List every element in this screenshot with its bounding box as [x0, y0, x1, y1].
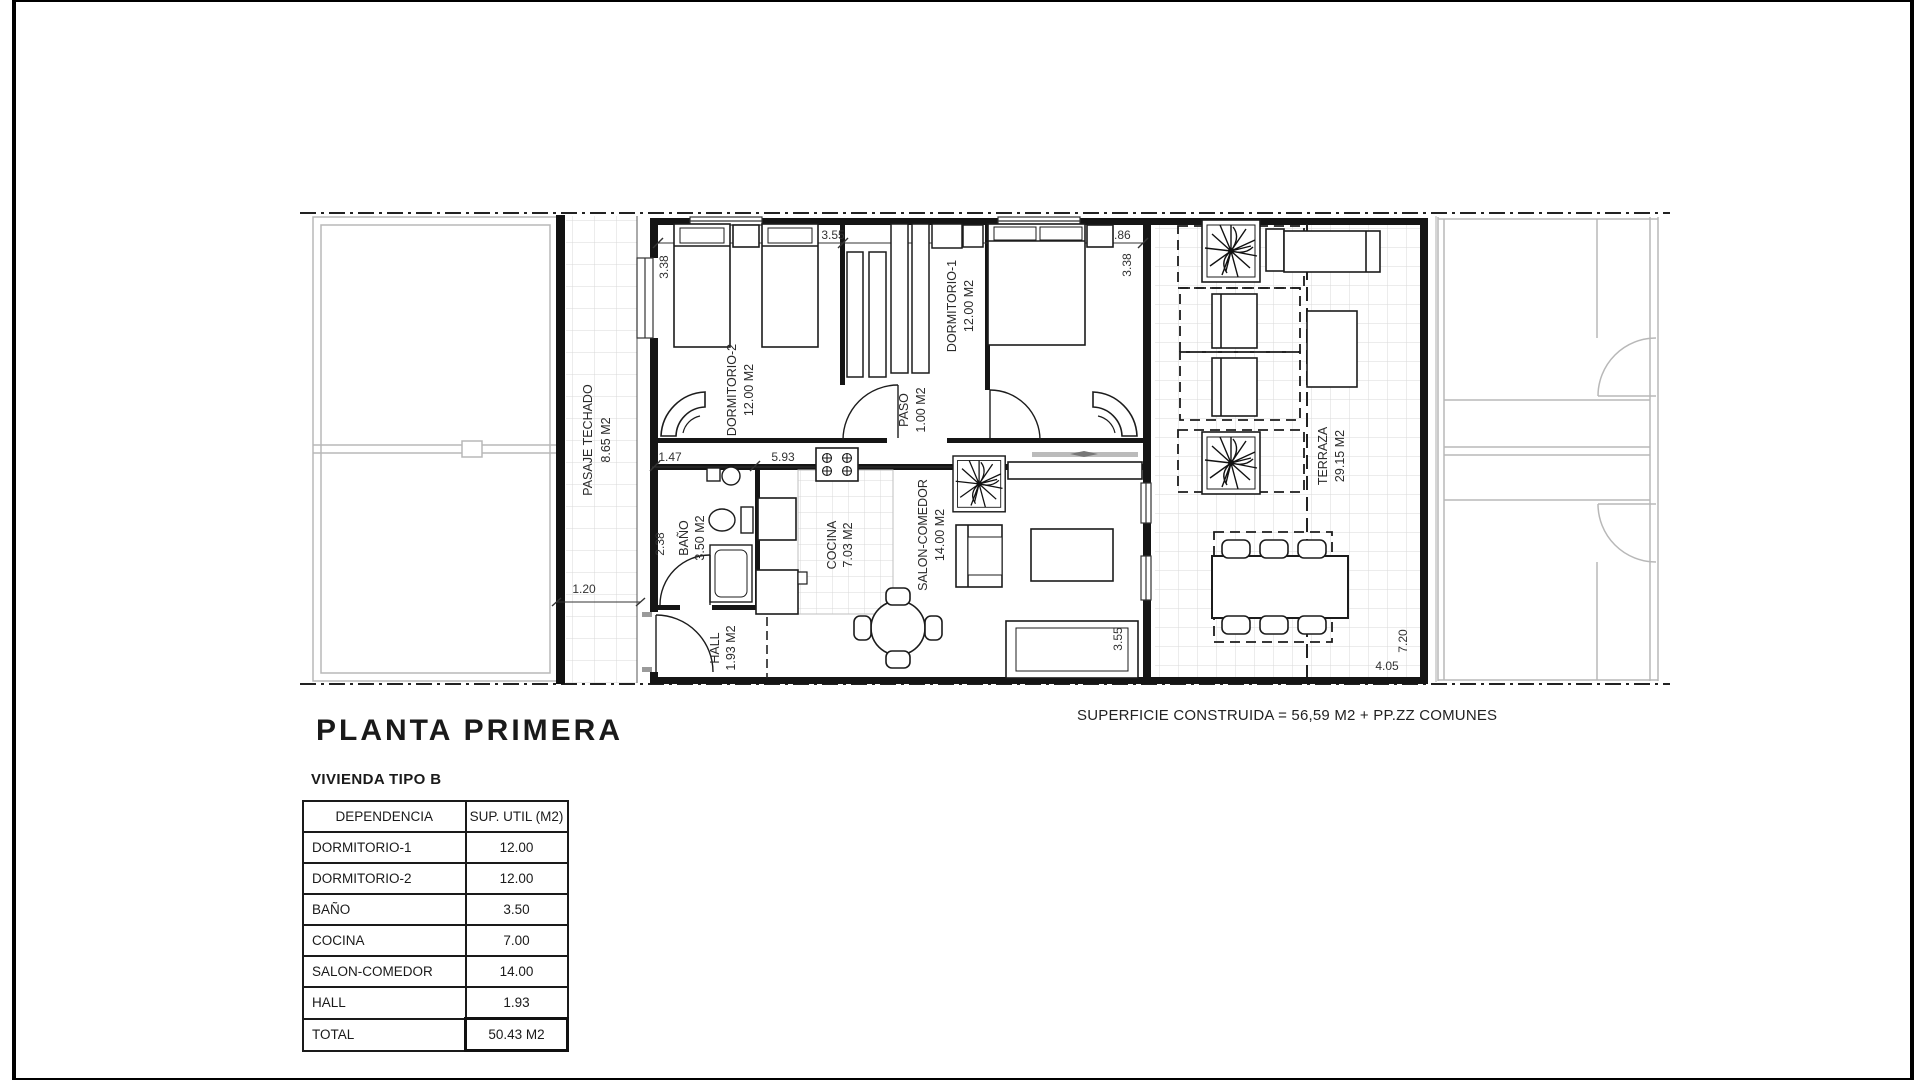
hall-door — [642, 612, 713, 672]
room-area: 1.93 M2 — [724, 625, 738, 670]
col-header-sup-util: SUP. UTIL (M2) — [466, 801, 568, 832]
drawing-sheet: PASAJE TECHADO 8.65 M2 1.20 — [0, 0, 1920, 1080]
dim-bath-height: 2.38 — [653, 532, 667, 556]
dim-dorm1-height: 3.38 — [1120, 253, 1134, 277]
table-title: VIVIENDA TIPO B — [311, 771, 441, 788]
plant-icon — [1202, 432, 1260, 494]
room-label: DORMITORIO-1 — [945, 260, 959, 352]
room-label: HALL — [708, 632, 722, 663]
dormitorio2-furniture — [661, 224, 818, 436]
room-label: PASO — [897, 393, 911, 427]
plant-icon — [1202, 220, 1260, 282]
room-label: COCINA — [825, 520, 839, 569]
built-area-note: SUPERFICIE CONSTRUIDA = 56,59 M2 + PP.ZZ… — [1077, 707, 1497, 724]
paso-doors — [843, 385, 1040, 440]
floor-plan-drawing: PASAJE TECHADO 8.65 M2 1.20 — [0, 0, 1920, 1080]
room-area: 12.00 M2 — [742, 364, 756, 416]
dim-bath-width: 1.47 — [658, 450, 682, 464]
dim-terraza-width: 4.05 — [1375, 659, 1399, 673]
dim-dorm2-width: 3.55 — [821, 228, 845, 242]
room-label: BAÑO — [677, 520, 691, 556]
room-area: 3.50 M2 — [693, 515, 707, 560]
neighbour-unit-left — [313, 217, 558, 681]
table-row: DORMITORIO-1 12.00 — [303, 832, 568, 863]
room-area: 14.00 M2 — [933, 509, 947, 561]
room-label: SALON-COMEDOR — [916, 479, 930, 591]
room-area: 29.15 M2 — [1333, 430, 1347, 482]
table-row: HALL 1.93 — [303, 987, 568, 1019]
table-row: SALON-COMEDOR 14.00 — [303, 956, 568, 987]
plant-icon — [953, 456, 1005, 512]
room-area: 8.65 M2 — [599, 417, 613, 462]
table-row: COCINA 7.00 — [303, 925, 568, 956]
neighbour-unit-right — [1438, 217, 1658, 681]
table-row: BAÑO 3.50 — [303, 894, 568, 925]
svg-text:1.20: 1.20 — [572, 582, 596, 596]
dim-kitchen-width: 5.93 — [771, 450, 795, 464]
room-area: 1.00 M2 — [914, 387, 928, 432]
room-area: 12.00 M2 — [962, 280, 976, 332]
table-row-total: TOTAL 50.43 M2 — [303, 1019, 568, 1051]
terraza — [1150, 216, 1436, 684]
room-area: 7.03 M2 — [841, 522, 855, 567]
dormitorio1-furniture — [988, 224, 1137, 436]
table-row: DORMITORIO-2 12.00 — [303, 863, 568, 894]
dim-terraza-height: 7.20 — [1396, 629, 1410, 653]
pasaje-techado: PASAJE TECHADO 8.65 M2 — [556, 215, 637, 684]
plan-title: PLANTA PRIMERA — [316, 714, 623, 748]
room-label: TERRAZA — [1316, 426, 1330, 485]
room-label: DORMITORIO-2 — [725, 344, 739, 436]
col-header-dependencia: DEPENDENCIA — [303, 801, 466, 832]
table-header-row: DEPENDENCIA SUP. UTIL (M2) — [303, 801, 568, 832]
dim-salon-height: 3.55 — [1111, 627, 1125, 651]
dim-dorm2-height: 3.38 — [657, 255, 671, 279]
room-label: PASAJE TECHADO — [581, 384, 595, 496]
areas-table: DEPENDENCIA SUP. UTIL (M2) DORMITORIO-1 … — [302, 800, 569, 1052]
